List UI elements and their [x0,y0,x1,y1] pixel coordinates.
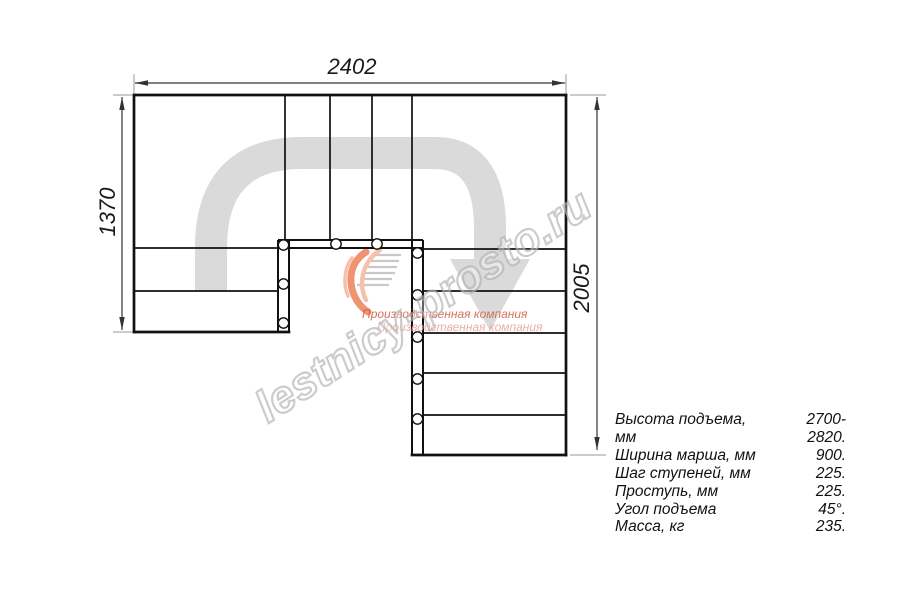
company-name-text: Производственная компания [362,307,552,321]
company-name-text-shadow: Производственная компания [377,320,567,334]
dimension-label-width: 2402 [292,54,412,80]
spec-value: 900. [816,447,846,465]
spec-row-tread: Проступь, мм 225. [615,483,846,501]
logo-flame-icon [345,250,380,312]
spec-row-angle: Угол подъема 45°. [615,501,846,519]
spec-label: Масса, кг [615,518,684,536]
spec-value: 2700-2820. [769,411,846,447]
spec-value: 225. [816,483,846,501]
spec-row-march-width: Ширина марша, мм 900. [615,447,846,465]
spec-label: Угол подъема [615,501,716,519]
dimension-label-left-height: 1370 [95,152,121,272]
spec-row-mass: Масса, кг 235. [615,518,846,536]
extension-lines [113,74,606,455]
spec-label: Шаг ступеней, мм [615,465,751,483]
spec-row-step-pitch: Шаг ступеней, мм 225. [615,465,846,483]
dimension-arrows [119,80,599,450]
spec-row-height: Высота подъема, мм 2700-2820. [615,411,846,447]
spec-value: 45°. [818,501,846,519]
spec-value: 225. [816,465,846,483]
spec-value: 235. [816,518,846,536]
spec-label: Высота подъема, мм [615,411,769,447]
dimension-label-right-height: 2005 [569,228,595,348]
specs-table: Высота подъема, мм 2700-2820. Ширина мар… [615,411,846,536]
spec-label: Проступь, мм [615,483,718,501]
stair-plan-canvas: Производственная компания Производственн… [0,0,900,600]
spec-label: Ширина марша, мм [615,447,756,465]
walking-line [211,153,530,331]
